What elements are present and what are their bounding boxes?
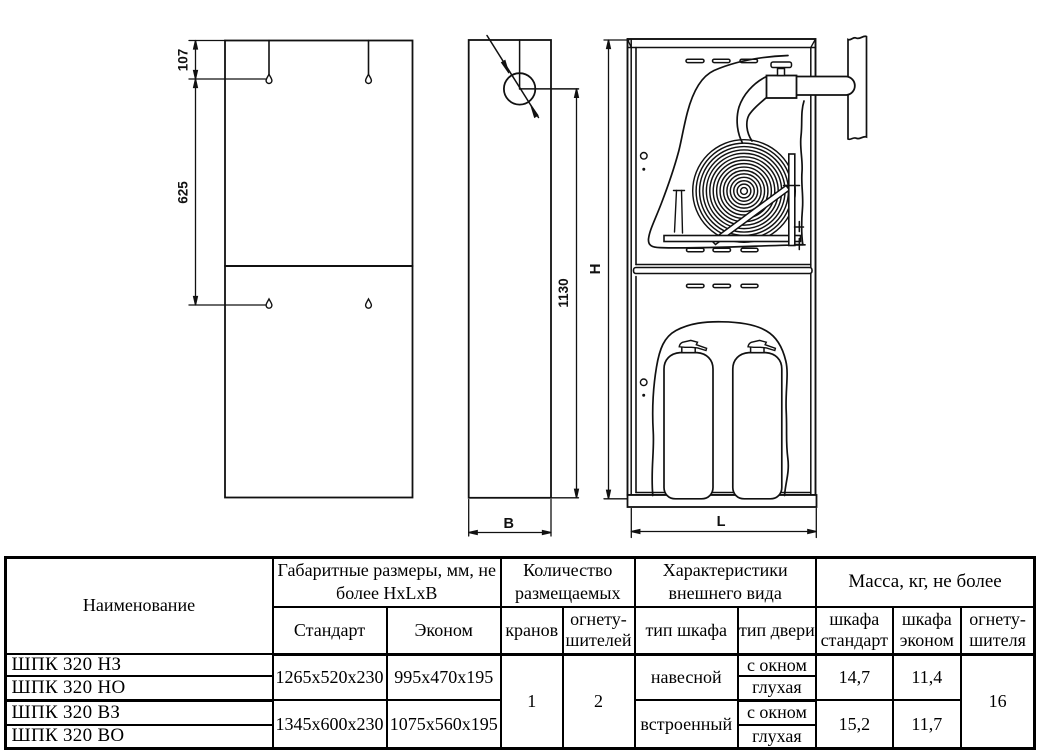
- svg-text:1130: 1130: [556, 278, 571, 307]
- svg-text:B: B: [503, 516, 513, 532]
- svg-text:625: 625: [176, 181, 191, 204]
- svg-text:L: L: [717, 514, 726, 530]
- svg-text:H: H: [587, 264, 604, 275]
- svg-text:107: 107: [176, 49, 191, 72]
